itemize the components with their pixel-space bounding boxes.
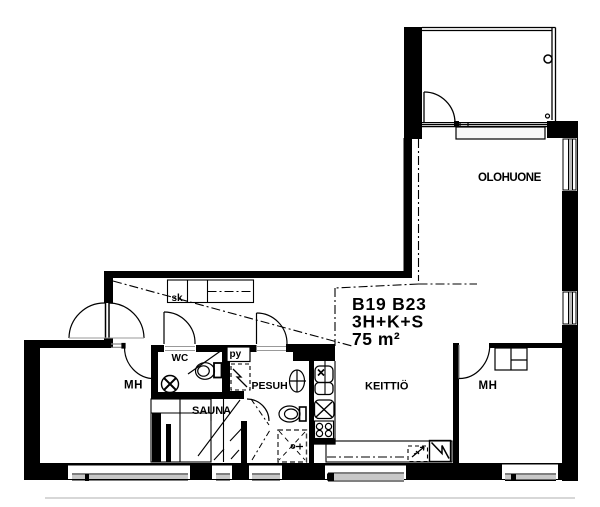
- svg-text:MH: MH: [479, 380, 498, 392]
- svg-text:OLOHUONE: OLOHUONE: [478, 172, 542, 184]
- svg-text:py: py: [230, 349, 242, 360]
- svg-text:SAUNA: SAUNA: [192, 405, 231, 417]
- svg-text:WC: WC: [172, 353, 189, 364]
- svg-text:KEITTIÖ: KEITTIÖ: [365, 380, 409, 393]
- svg-text:75 m²: 75 m²: [352, 329, 400, 349]
- svg-text:sk: sk: [172, 293, 184, 304]
- svg-text:MH: MH: [124, 380, 143, 392]
- svg-text:PESUH: PESUH: [252, 380, 288, 392]
